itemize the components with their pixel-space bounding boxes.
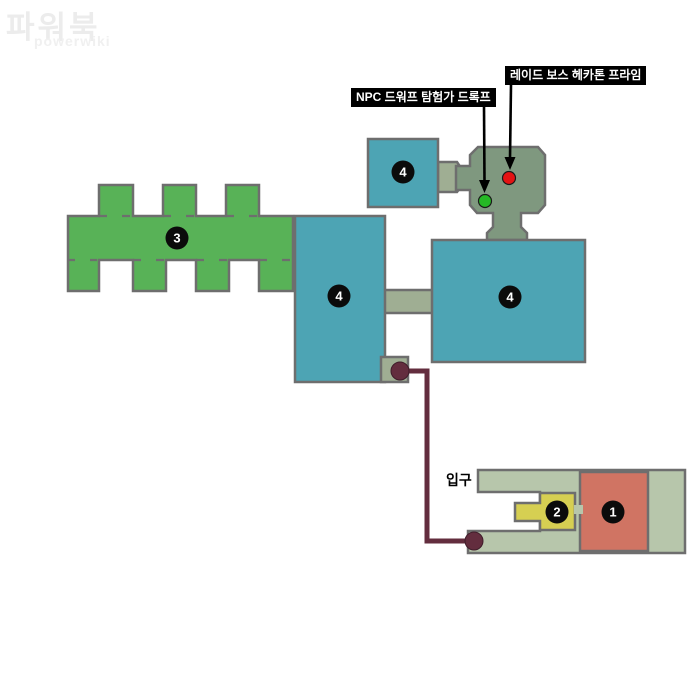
badge-area-1: 1 xyxy=(602,501,625,524)
badge-area-1-number: 1 xyxy=(609,505,616,520)
map-canvas: 3 4 4 4 2 1 xyxy=(0,0,700,700)
badge-area-4-right: 4 xyxy=(499,286,522,309)
badge-area-2-number: 2 xyxy=(553,505,560,520)
badge-area-4-right-number: 4 xyxy=(506,290,514,305)
badge-area-2: 2 xyxy=(546,501,569,524)
dungeon-map: 파워북 powerwiki xyxy=(0,0,700,700)
route-path xyxy=(391,362,483,550)
npc-callout: NPC 드워프 탐험가 드록프 xyxy=(351,88,496,107)
route-end-dot xyxy=(465,532,483,550)
route-start-dot xyxy=(391,362,409,380)
route-line xyxy=(400,371,474,541)
badge-area-3-number: 3 xyxy=(173,231,180,246)
badge-area-4-left: 4 xyxy=(328,285,351,308)
corridor-mid xyxy=(380,290,434,313)
raid-boss-callout: 레이드 보스 헤카톤 프라임 xyxy=(505,66,646,85)
badge-area-4-top-number: 4 xyxy=(399,165,407,180)
badge-area-4-left-number: 4 xyxy=(335,289,343,304)
badge-area-4-top: 4 xyxy=(392,161,415,184)
badge-area-3: 3 xyxy=(166,227,189,250)
door-gap-area1 xyxy=(574,505,583,514)
boss-room xyxy=(456,147,545,240)
raid-boss-leader-arrow xyxy=(505,85,516,170)
entrance-label: 입구 xyxy=(446,470,472,490)
npc-marker-dot xyxy=(479,195,492,208)
raid-boss-marker-dot xyxy=(503,172,516,185)
